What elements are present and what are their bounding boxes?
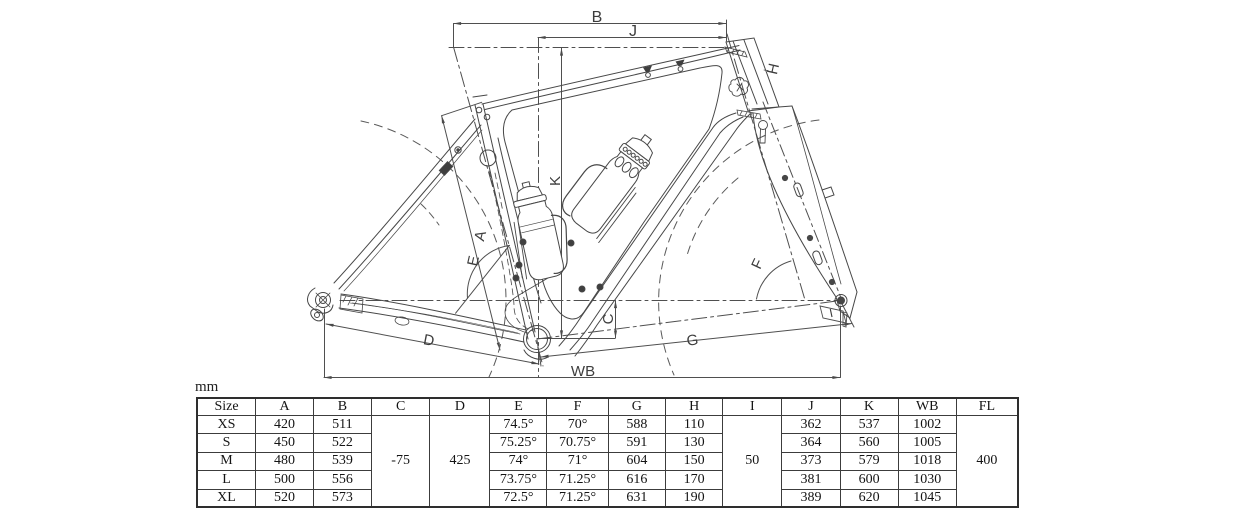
svg-text:G: G xyxy=(686,331,700,349)
svg-text:WB: WB xyxy=(571,363,595,380)
svg-text:D: D xyxy=(422,331,436,350)
svg-text:C: C xyxy=(600,313,617,324)
svg-text:J: J xyxy=(629,23,637,40)
svg-text:B: B xyxy=(592,9,603,26)
svg-text:K: K xyxy=(547,176,564,186)
svg-text:F: F xyxy=(748,256,767,271)
svg-text:E: E xyxy=(464,254,483,268)
svg-text:A: A xyxy=(471,229,490,243)
svg-text:I: I xyxy=(828,306,834,320)
